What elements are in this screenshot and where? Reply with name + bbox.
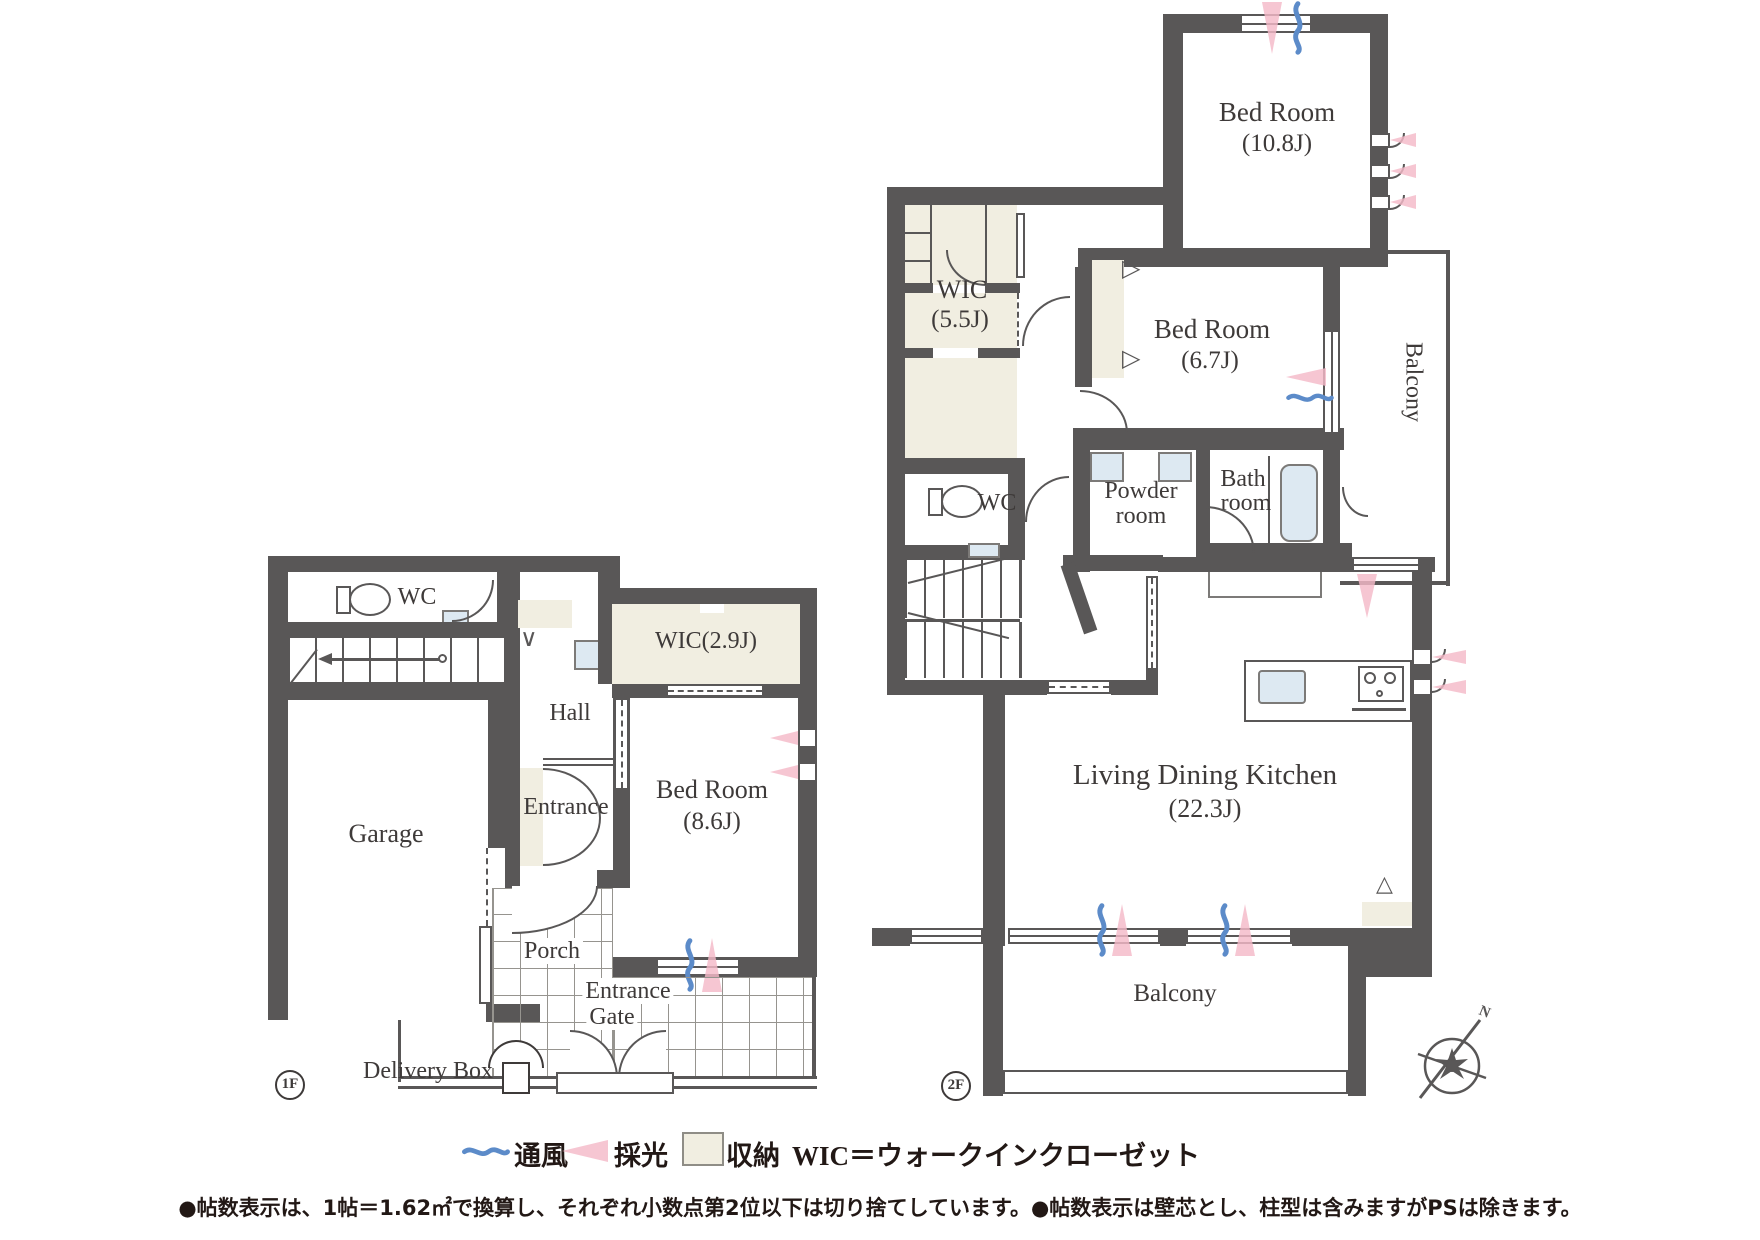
wall: [978, 348, 1020, 358]
wall: [1348, 946, 1366, 1096]
sliding-door: [666, 684, 764, 697]
sliding-door: [614, 698, 629, 790]
legend-wic-definition: WIC＝ウォークインクローゼット: [792, 1134, 1200, 1173]
room-label-powder2: room: [1116, 503, 1167, 529]
closet-line: [905, 232, 930, 234]
floor-plan-canvas: WIC (5.5J) ▷ ▷ Bed Room (6.7J) Balcony W…: [0, 0, 1760, 1240]
door-swing-icon: [1022, 296, 1070, 346]
room-area-wic2f: (5.5J): [931, 306, 989, 334]
window: [1370, 133, 1390, 148]
vent-wave-icon: [1288, 0, 1306, 56]
wall: [905, 458, 1025, 474]
room-label-gate2: Gate: [586, 1004, 637, 1030]
balcony-rail: [1446, 250, 1450, 586]
room-label-ldk: Living Dining K​itchen: [1073, 760, 1337, 792]
legend-vent-label: 通風: [514, 1134, 568, 1173]
window: [656, 958, 740, 976]
wall: [1061, 562, 1098, 635]
daylight-wedge-icon: [1262, 2, 1282, 54]
wall: [905, 348, 933, 358]
label-delivery-box: Delivery Box: [363, 1058, 493, 1084]
svg-text:N: N: [1477, 1003, 1493, 1022]
room-label-wc2f: WC: [978, 490, 1017, 516]
kitchen-sink-icon: [1258, 670, 1306, 704]
door-swing-icon: [543, 818, 601, 866]
stairs-arrow-line: [332, 658, 442, 661]
wall: [600, 588, 817, 604]
window-fixture: [968, 543, 1000, 558]
door-leaf: [1016, 213, 1025, 278]
room-label-balcony-side: Balcony: [1400, 342, 1426, 422]
stairs: [905, 622, 1022, 678]
toilet-icon: [349, 583, 391, 616]
wall: [1420, 557, 1435, 572]
balcony-rail: [1388, 250, 1450, 254]
room-area-bedroom-s: (6.7J): [1181, 347, 1239, 375]
room-label-porch: Porch: [521, 938, 583, 964]
room-label-bedroom-s: Bed Room: [1154, 315, 1270, 345]
stairs-arrow-head: [318, 653, 332, 665]
wall: [798, 604, 817, 977]
room-area-bedroom-l: (10.8J): [1242, 130, 1312, 158]
daylight-wedge-icon: [1390, 195, 1416, 209]
daylight-wedge-icon: [770, 765, 798, 779]
vent-wave-icon: [1215, 902, 1233, 958]
storage-area: [1362, 902, 1412, 926]
room-label-wic1f: WIC(2.9J): [655, 628, 757, 654]
burner-icon: [1384, 672, 1396, 684]
wall: [1292, 928, 1432, 946]
wall: [1323, 434, 1340, 560]
gate-threshold: [556, 1072, 674, 1094]
delivery-box-icon: [502, 1062, 530, 1094]
wall-notch: [700, 604, 724, 613]
basin-icon: [574, 640, 600, 670]
sliding-window: [1008, 928, 1160, 944]
footnote: ●帖数表示は、1帖＝1.62㎡で換算し、それぞれ小数点第2位以下は切り捨てしてい…: [0, 1192, 1760, 1222]
compass-icon: N: [1398, 998, 1508, 1113]
room-area-ldk: (22.3J): [1169, 795, 1242, 824]
door-arrow-icon: △: [1376, 872, 1393, 897]
legend-storage-label: 収納: [726, 1134, 780, 1173]
step-line: [543, 764, 613, 766]
storage-area: [1092, 260, 1124, 378]
burner-icon: [1364, 672, 1376, 684]
wall: [1158, 557, 1352, 572]
wall: [1163, 14, 1183, 267]
window: [798, 728, 817, 748]
daylight-wedge-icon: [1432, 680, 1466, 694]
window: [910, 928, 983, 944]
window: [1370, 195, 1390, 210]
daylight-wedge-icon: [1390, 164, 1416, 178]
closet-line: [905, 260, 930, 262]
wall: [1323, 267, 1340, 330]
room-label-balcony-bottom: Balcony: [1133, 980, 1216, 1008]
wall: [268, 682, 505, 700]
room-label-bedroom-l: Bed Room: [1219, 98, 1335, 128]
sliding-door: [1146, 576, 1158, 670]
wall: [1063, 555, 1163, 571]
room-label-gate1: Entrance: [582, 978, 673, 1004]
mirror-v-icon: ∨: [520, 624, 538, 652]
room-label-powder1: Powder: [1104, 478, 1177, 504]
vent-wave-icon: [1286, 388, 1334, 406]
window: [1370, 164, 1390, 179]
room-label-bedroom1f: Bed Room: [656, 776, 768, 805]
vent-wave-icon: [462, 1140, 510, 1162]
room-label-wic2f: WIC: [937, 276, 988, 305]
room-label-wc1f: WC: [398, 584, 437, 610]
wall: [1111, 680, 1146, 695]
window: [1352, 557, 1420, 572]
wall: [1160, 928, 1186, 946]
stairs-landing-line: [905, 619, 1020, 622]
room-label-entrance: Entrance: [523, 794, 608, 820]
door-swing-icon: [452, 580, 494, 622]
vent-wave-icon: [1092, 902, 1110, 958]
fence-line: [812, 977, 816, 1078]
room-label-bath1: Bath: [1220, 466, 1265, 492]
daylight-wedge-icon: [1112, 904, 1132, 956]
wall: [597, 870, 630, 888]
closet-line: [930, 205, 932, 285]
wall: [983, 690, 1005, 946]
daylight-wedge-icon: [1390, 133, 1416, 147]
wall: [1366, 946, 1432, 977]
opening-dashed: [486, 848, 488, 926]
room-label-hall: Hall: [549, 700, 590, 726]
daylight-wedge-icon: [1357, 574, 1377, 618]
wall: [268, 622, 505, 638]
wall: [505, 638, 520, 888]
wall: [887, 680, 1047, 695]
daylight-wedge-icon: [770, 731, 798, 745]
wall: [1146, 668, 1158, 695]
door-swing-icon: [1342, 487, 1368, 517]
legend-storage-swatch: [682, 1132, 724, 1166]
wall: [488, 700, 505, 848]
daylight-wedge-icon: [1432, 650, 1466, 664]
wall: [268, 556, 620, 572]
room-label-garage: Garage: [348, 820, 423, 849]
daylight-wedge-icon: [562, 1140, 608, 1162]
counter: [1208, 572, 1322, 598]
counter-line: [1352, 708, 1406, 711]
door-leaf: [479, 926, 492, 1004]
wall: [887, 187, 1183, 205]
door-swing-icon: [1080, 390, 1128, 433]
wall: [985, 283, 1020, 293]
wall: [905, 545, 1025, 560]
sliding-door: [1047, 680, 1111, 694]
step-line: [543, 758, 613, 760]
wall: [983, 946, 1003, 1096]
window: [798, 762, 817, 782]
room-area-bedroom1f: (8.6J): [683, 808, 741, 836]
wall: [872, 928, 910, 946]
legend-daylight-label: 採光: [614, 1134, 668, 1173]
storage-area: [905, 358, 1017, 470]
opening-dashed: [620, 794, 622, 838]
closet-door-arrow-icon: ▷: [1122, 254, 1140, 282]
wall: [1075, 267, 1092, 387]
daylight-wedge-icon: [1286, 368, 1326, 386]
closet-door-arrow-icon: ▷: [1122, 344, 1140, 372]
wall: [1412, 572, 1432, 928]
bathtub-icon: [1280, 464, 1318, 542]
stairs-arrow-start: [438, 654, 447, 663]
balcony-rail: [1003, 1070, 1348, 1094]
wall: [905, 283, 933, 293]
daylight-wedge-icon: [1235, 904, 1255, 956]
wall: [887, 187, 905, 684]
wall: [1073, 450, 1090, 572]
window: [1412, 648, 1432, 666]
burner-icon: [1376, 690, 1383, 697]
door-swing-icon: [1025, 476, 1069, 522]
floor-badge-2f: 2F: [941, 1071, 971, 1101]
window: [1412, 678, 1432, 696]
floor-badge-1f: 1F: [275, 1070, 305, 1100]
opening-dashed: [1017, 293, 1019, 346]
